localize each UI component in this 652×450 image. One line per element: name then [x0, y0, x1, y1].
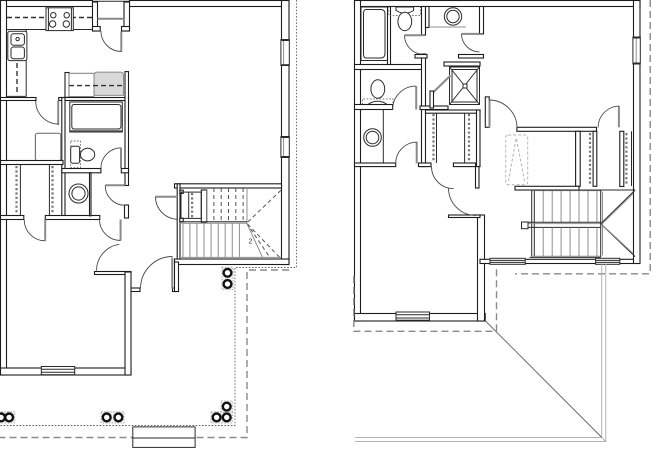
svg-text:2: 2: [249, 239, 253, 246]
